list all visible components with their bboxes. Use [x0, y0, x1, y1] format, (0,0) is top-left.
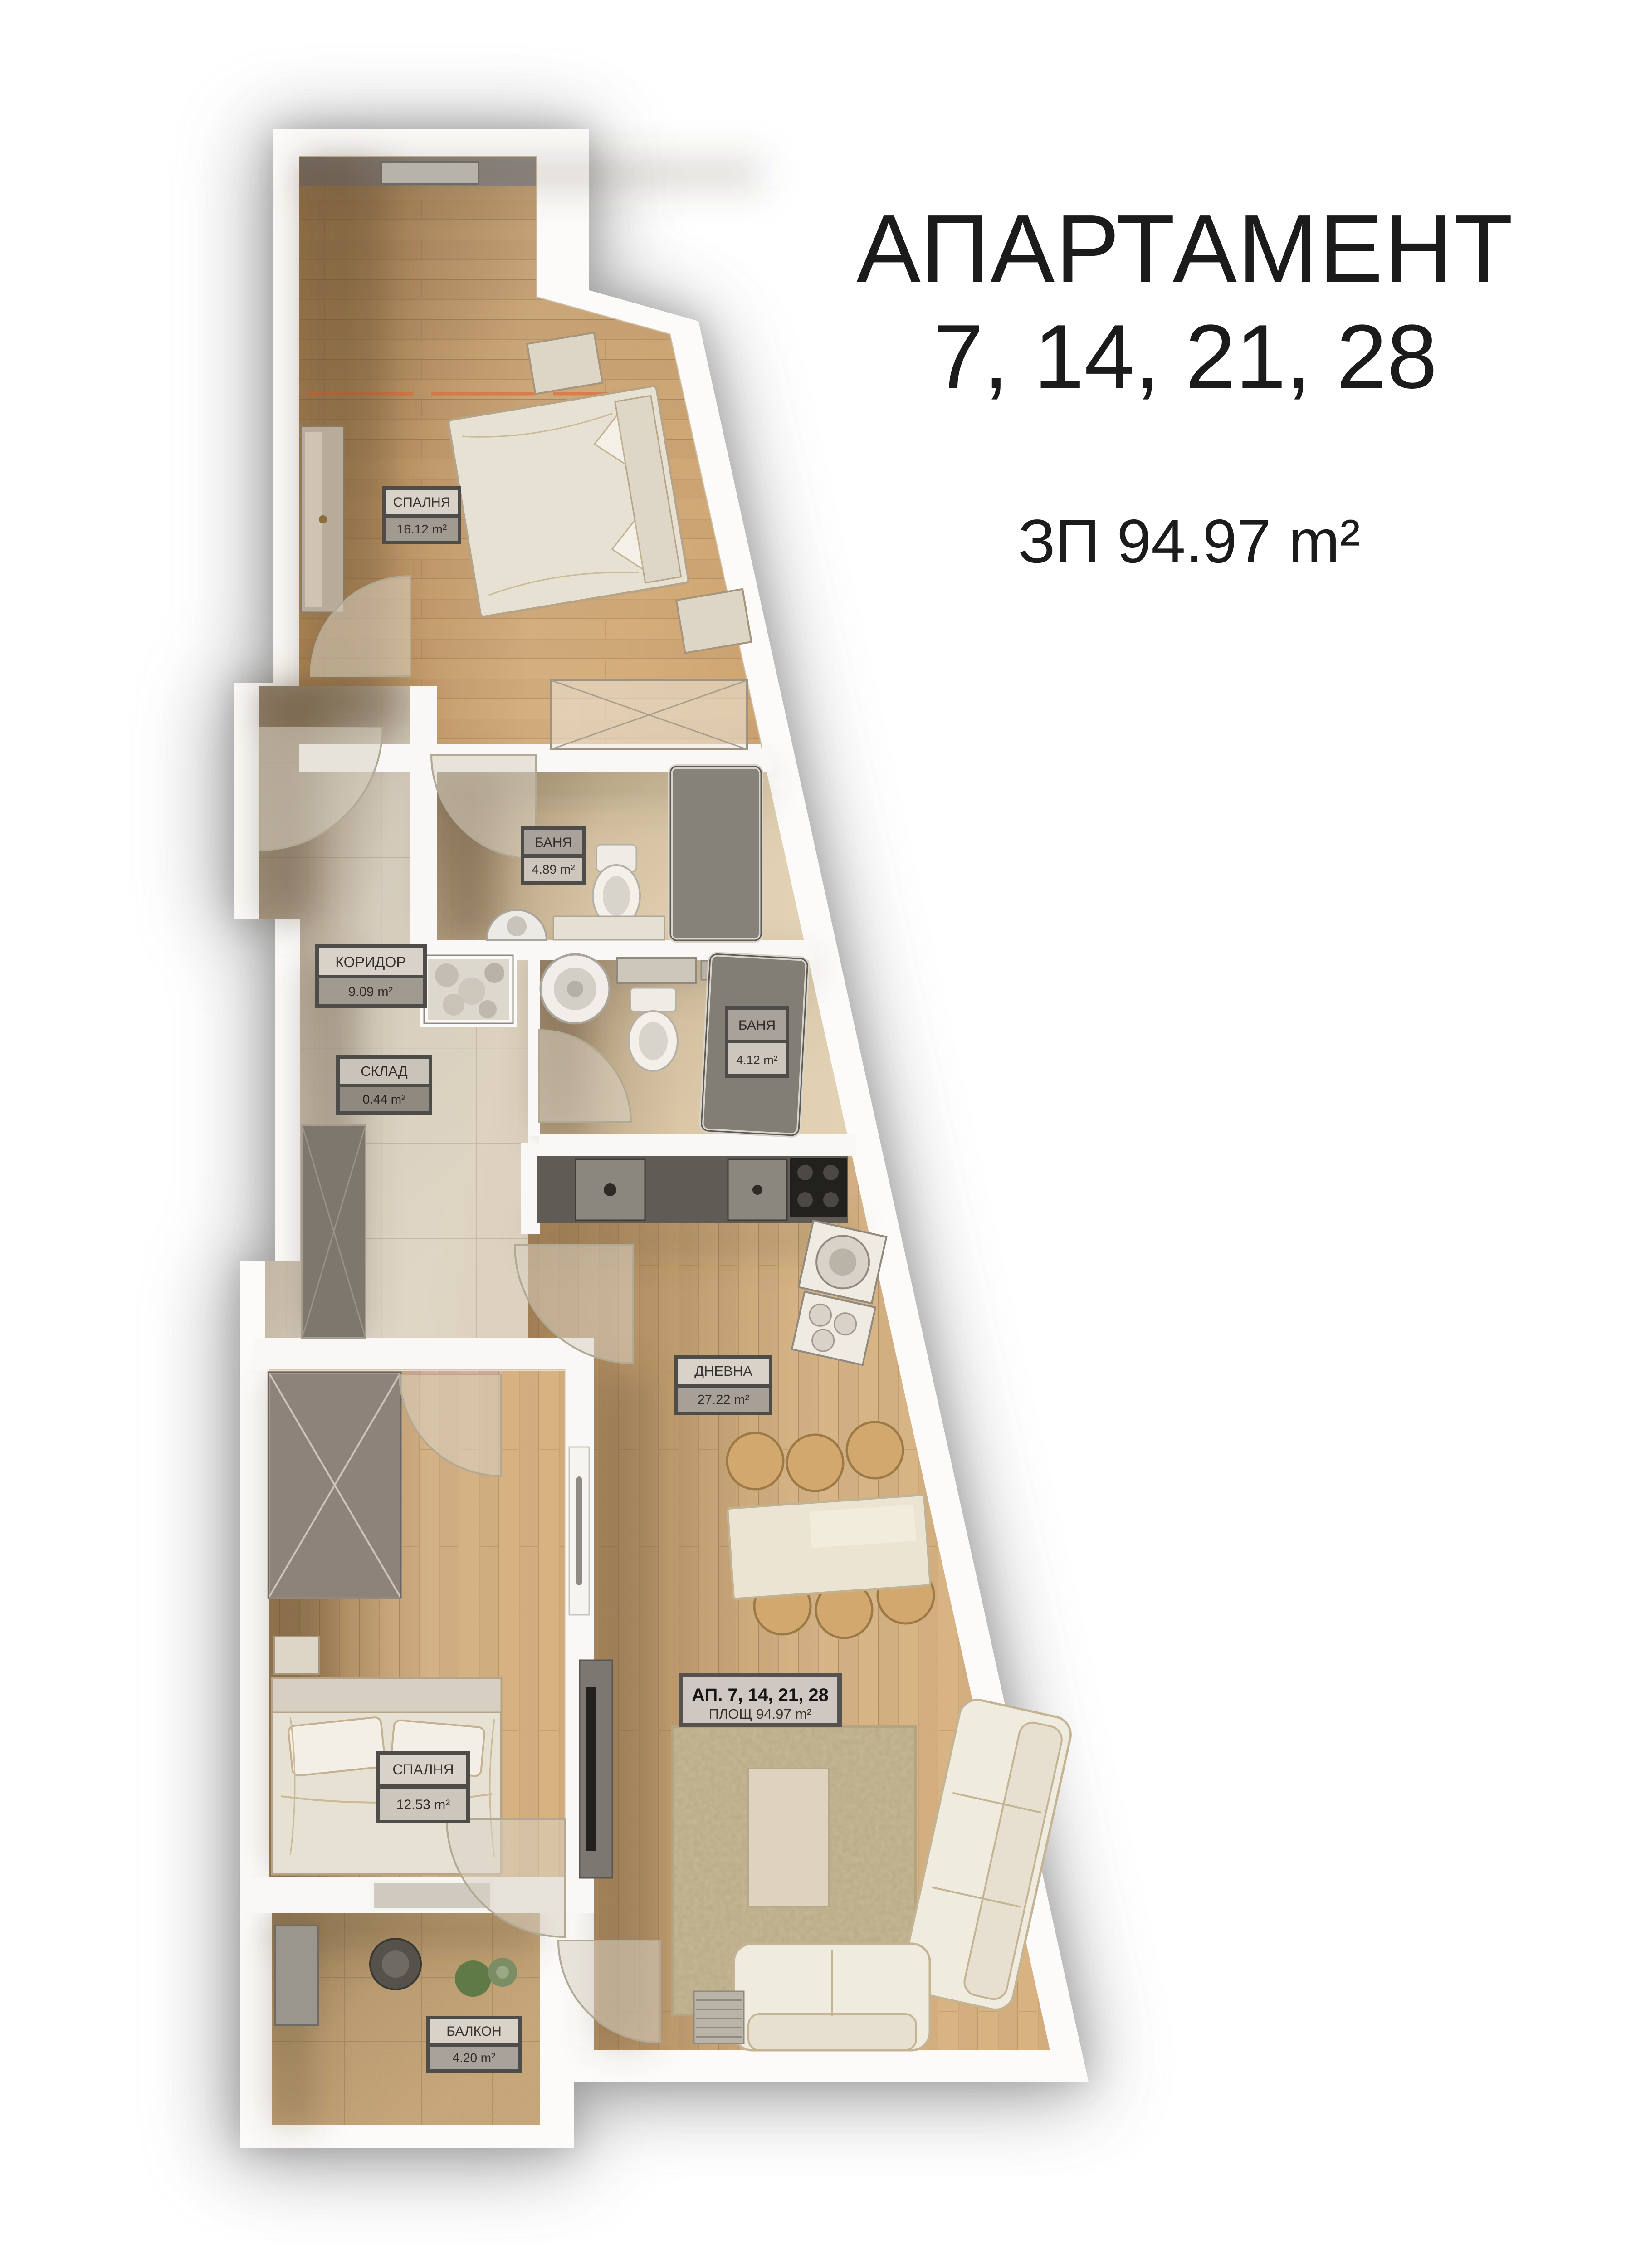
svg-text:БАНЯ: БАНЯ [738, 1018, 776, 1033]
svg-text:СПАЛНЯ: СПАЛНЯ [392, 1761, 454, 1778]
svg-text:АП. 7, 14, 21, 28: АП. 7, 14, 21, 28 [692, 1685, 829, 1705]
svg-text:КОРИДОР: КОРИДОР [335, 954, 405, 970]
svg-text:ДНЕВНА: ДНЕВНА [694, 1363, 752, 1379]
svg-text:4.20 m²: 4.20 m² [453, 2051, 496, 2065]
svg-text:27.22 m²: 27.22 m² [698, 1393, 750, 1407]
svg-text:0.44 m²: 0.44 m² [363, 1092, 406, 1106]
svg-text:4.89 m²: 4.89 m² [532, 862, 575, 876]
svg-text:БАЛКОН: БАЛКОН [446, 2024, 502, 2039]
svg-text:7, 14, 21, 28: 7, 14, 21, 28 [933, 306, 1437, 407]
svg-text:БАНЯ: БАНЯ [535, 835, 572, 850]
svg-text:АПАРТАМЕНТ: АПАРТАМЕНТ [856, 195, 1514, 302]
svg-text:СКЛАД: СКЛАД [361, 1063, 408, 1079]
svg-text:12.53 m²: 12.53 m² [396, 1797, 450, 1812]
svg-text:16.12 m²: 16.12 m² [397, 522, 447, 536]
svg-text:9.09 m²: 9.09 m² [348, 985, 393, 999]
svg-text:4.12 m²: 4.12 m² [736, 1053, 778, 1067]
svg-text:СПАЛНЯ: СПАЛНЯ [393, 495, 451, 510]
svg-text:ПЛОЩ 94.97 m²: ПЛОЩ 94.97 m² [709, 1706, 812, 1722]
svg-text:ЗП 94.97 m²: ЗП 94.97 m² [1018, 507, 1360, 576]
